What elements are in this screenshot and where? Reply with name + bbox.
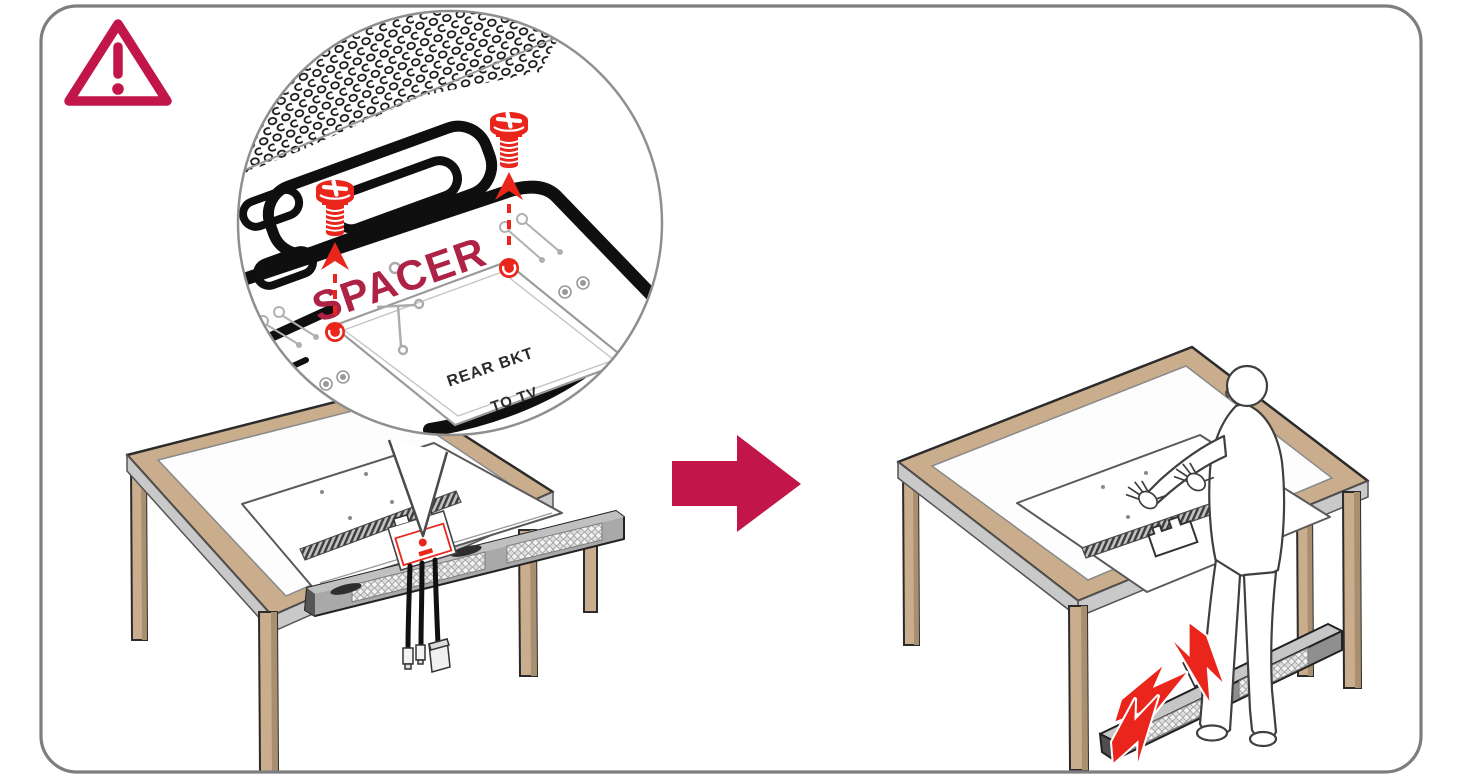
diagram-canvas: REAR BKT TO TV SPACER: [0, 0, 1465, 784]
table-leg: [259, 612, 278, 772]
person-head: [1227, 366, 1267, 406]
scene-attach-bracket: [127, 388, 624, 772]
table-leg: [903, 468, 919, 645]
warning-triangle-icon: [69, 24, 167, 101]
person-torso: [1209, 405, 1284, 577]
installation-diagram: REAR BKT TO TV SPACER: [0, 0, 1465, 784]
table-leg: [1343, 492, 1361, 688]
screw-hole-right: [499, 258, 519, 278]
scene-do-not-rest-on-soundbar: [898, 347, 1368, 772]
screw-hole-left: [325, 322, 345, 342]
warning-exclamation-dot: [112, 83, 124, 95]
person-foot: [1250, 732, 1276, 746]
table-leg: [1069, 606, 1088, 770]
arrow-right-icon: [672, 435, 801, 532]
person-foot: [1197, 726, 1227, 741]
